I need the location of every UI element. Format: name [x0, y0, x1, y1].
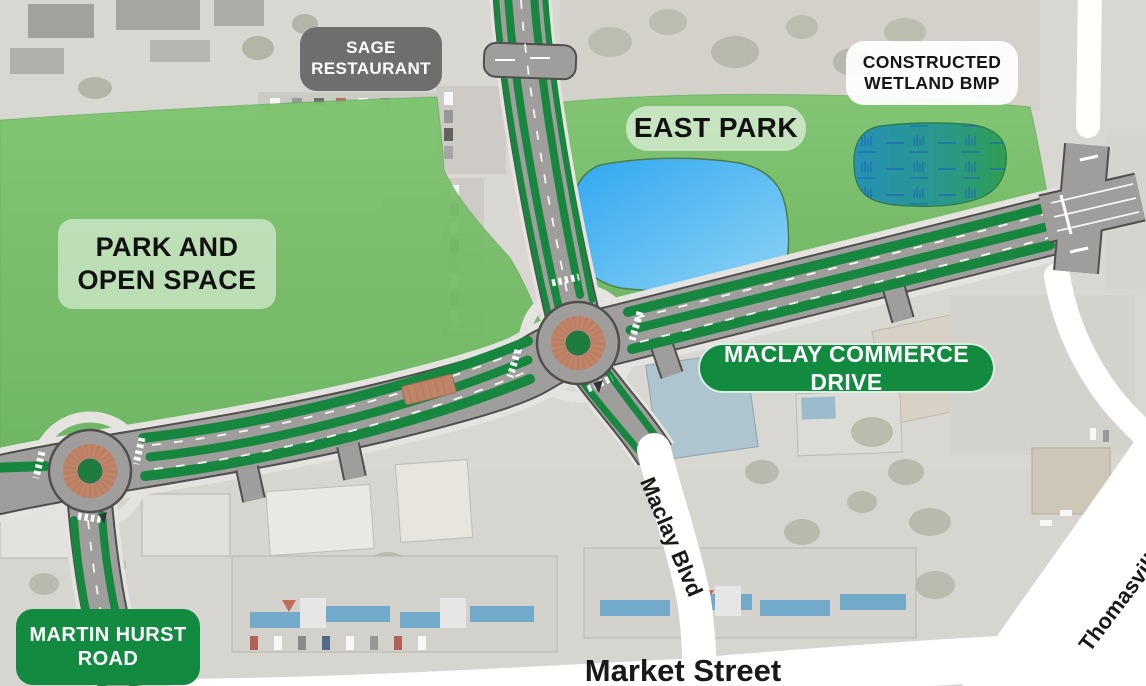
label-line: EAST PARK — [634, 111, 798, 145]
label-line: OPEN SPACE — [77, 264, 256, 297]
constructed-wetland-label: CONSTRUCTED WETLAND BMP — [846, 41, 1018, 105]
maclay-commerce-drive-label: MACLAY COMMERCE DRIVE — [698, 343, 995, 393]
thomasville-road-north — [1088, 0, 1090, 126]
market-street-label: Market Street — [585, 653, 781, 686]
park-open-space-label: PARK AND OPEN SPACE — [58, 219, 276, 309]
label-line: ROAD — [78, 647, 139, 671]
label-line: PARK AND — [96, 231, 239, 264]
label-line: WETLAND BMP — [864, 73, 1000, 94]
roundabout-central — [537, 302, 619, 384]
label-line: CONSTRUCTED — [863, 52, 1002, 73]
constructed-wetland-area — [854, 123, 1006, 206]
label-line: MARTIN HURST — [29, 623, 186, 647]
label-line: SAGE — [346, 38, 396, 59]
site-plan-map: SAGE RESTAURANT CONSTRUCTED WETLAND BMP … — [0, 0, 1146, 686]
martin-hurst-road-label: MARTIN HURST ROAD — [16, 609, 200, 685]
east-park-label: EAST PARK — [626, 106, 806, 151]
roundabout-west — [49, 430, 131, 512]
label-line: RESTAURANT — [311, 59, 431, 80]
sage-restaurant-label: SAGE RESTAURANT — [300, 27, 442, 91]
label-line: MACLAY COMMERCE DRIVE — [700, 340, 993, 396]
